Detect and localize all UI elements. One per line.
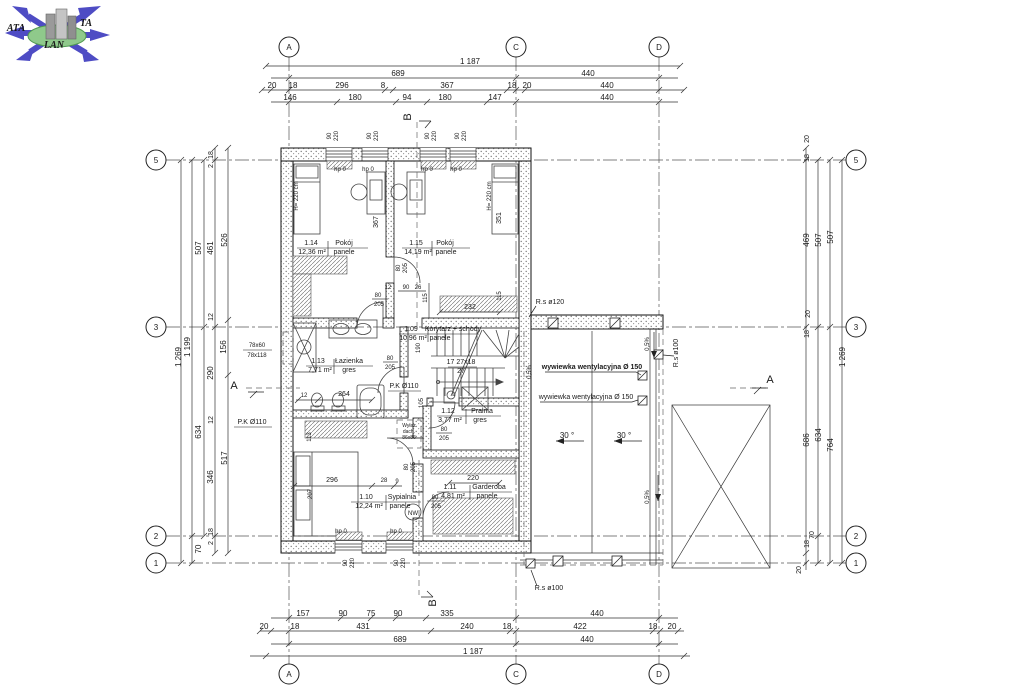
label-dims-bottom-row1-2: 75 xyxy=(367,609,376,618)
label-common-w90: 90 xyxy=(327,132,333,139)
label-dims-bottom-row1-0: 157 xyxy=(296,609,310,618)
label-logo-ata: ATA xyxy=(6,23,26,34)
label-common-hp0: hp 0 xyxy=(450,167,462,173)
label-rooms-6-number: 1.11 xyxy=(443,484,456,491)
label-common-h220: H= 220 cm xyxy=(487,181,493,210)
label-dims-top-row3-2: 296 xyxy=(335,81,349,90)
label-dims-left-col4-8: 2 xyxy=(208,541,215,545)
label-common-deg30: 30 ° xyxy=(617,431,631,440)
label-axis_bubbles-d: D xyxy=(656,670,662,679)
label-dims-right-col2-1: 634 xyxy=(814,428,823,442)
label-dims-right-col1-4: 18 xyxy=(804,330,811,338)
label-dims-top-row2-1: 440 xyxy=(581,69,595,78)
label-axis_bubbles-a: A xyxy=(286,43,292,52)
label-common-wyw: wywiewka wentylacyjna Ø 150 xyxy=(541,364,642,371)
label-axis_bubbles-b: B xyxy=(427,599,439,606)
label-rooms-2-number: 1.13 xyxy=(311,358,325,365)
label-common-rs100: R.s ø100 xyxy=(673,339,680,368)
label-rooms-4-area: 3,77 m² xyxy=(438,417,462,424)
label-dims-left-col4-1: 2 xyxy=(208,164,215,168)
label-dims-right-col2-2: 70 xyxy=(809,531,816,539)
label-common-slope: 0,5% xyxy=(645,490,651,504)
label-dims-left-col5-2: 517 xyxy=(220,451,229,465)
label-dims-left-col4-2: 461 xyxy=(206,241,215,255)
label-axis_bubbles-n3: 3 xyxy=(854,323,859,332)
label-axis_bubbles-n2: 2 xyxy=(854,532,859,541)
label-dims-bottom-row2-5: 422 xyxy=(573,622,587,631)
label-dims-right-col1-7: 20 xyxy=(796,566,803,574)
label-axis_bubbles-a: A xyxy=(766,374,774,386)
label-rooms-4-number: 1.12 xyxy=(441,408,455,415)
label-dims-top-row3-3: 8 xyxy=(381,81,386,90)
label-labels-nw: NW xyxy=(408,511,418,517)
label-labels-d367: 367 xyxy=(373,216,380,228)
label-rooms-5-floor: panele xyxy=(389,503,410,510)
label-common-hp0: hp 0 xyxy=(390,529,402,535)
label-rooms-3-number: 1.09 xyxy=(404,326,418,333)
label-dims-top-total: 1 187 xyxy=(460,57,481,66)
label-rooms-3-floor: panele xyxy=(429,335,450,342)
label-labels-d220: 220 xyxy=(467,475,479,482)
label-common-w220: 220 xyxy=(334,130,340,141)
axis-bubbles xyxy=(146,37,866,684)
label-axis_bubbles-a: A xyxy=(286,670,292,679)
label-dims-left-col5-0: 526 xyxy=(220,233,229,247)
label-dims-bottom-row2-3: 240 xyxy=(460,622,474,631)
label-dims-top-row3-7: 440 xyxy=(600,81,614,90)
label-rooms-3-area: 10,96 m² xyxy=(399,335,427,342)
label-dims-left-col4-3: 12 xyxy=(208,313,215,321)
label-common-w220: 220 xyxy=(350,557,356,568)
label-rooms-5-area: 12,24 m² xyxy=(355,503,383,510)
label-labels-d26: 26 xyxy=(415,285,422,291)
label-dims-top-row3-0: 20 xyxy=(268,81,277,90)
label-labels-d115: 115 xyxy=(423,293,429,303)
label-dims-left-col4-0: 18 xyxy=(208,151,215,159)
label-dims-bottom-total: 1 187 xyxy=(463,647,484,656)
label-rooms-2-area: 7,71 m² xyxy=(308,367,332,374)
label-common-w220: 220 xyxy=(401,557,407,568)
label-labels-roof_win_bottom: 78x118 xyxy=(247,353,267,359)
label-labels-d12: 12 xyxy=(301,393,308,399)
label-dims-top-row4-4: 147 xyxy=(488,93,502,102)
label-rooms-6-floor: panele xyxy=(476,493,497,500)
label-rooms-1-number: 1.15 xyxy=(409,240,423,247)
label-axis_bubbles-d: D xyxy=(656,43,662,52)
label-dims-top-row4-1: 180 xyxy=(348,93,362,102)
floor-plan-canvas: ACDACD53215321AABB1 18768944020182968367… xyxy=(0,0,1024,699)
label-stairs-line2: 27 xyxy=(457,368,465,375)
label-labels-d28: 28 xyxy=(381,478,388,484)
label-axis_bubbles-n1: 1 xyxy=(854,559,859,568)
label-common-hp0: hp 0 xyxy=(334,167,346,173)
label-labels-d105: 105 xyxy=(419,397,425,408)
label-labels-d113: 113 xyxy=(307,432,313,442)
garage-roof-outline xyxy=(672,405,770,568)
label-common-d80: 80 xyxy=(375,293,382,299)
label-dims-top-row4-5: 440 xyxy=(600,93,614,102)
annotation-leaders xyxy=(529,306,674,586)
label-dims-top-row3-6: 20 xyxy=(523,81,532,90)
label-rooms-0-number: 1.14 xyxy=(304,240,318,247)
label-labels-d115: 115 xyxy=(497,291,503,301)
label-dims-top-row3-1: 18 xyxy=(289,81,298,90)
label-rooms-0-area: 12,36 m² xyxy=(298,249,326,256)
label-dims-top-row4-2: 94 xyxy=(403,93,412,102)
label-dims-bottom-row2-1: 18 xyxy=(291,622,300,631)
label-common-d205: 205 xyxy=(431,504,442,510)
roof-slope-arrows xyxy=(556,332,661,501)
label-rooms-4-name: Pralnia xyxy=(471,408,493,415)
label-dims-top-row3-4: 367 xyxy=(440,81,454,90)
label-dims-bottom-row2-4: 18 xyxy=(503,622,512,631)
label-dims-right-total: 1 269 xyxy=(838,346,847,367)
label-common-wyw: wywiewka wentylacyjna Ø 150 xyxy=(538,394,634,401)
label-common-w220: 220 xyxy=(374,130,380,141)
label-dims-right-col1-3: 20 xyxy=(805,310,812,318)
label-dims-left-col4-4: 290 xyxy=(206,366,215,380)
label-common-deg30: 30 ° xyxy=(560,431,574,440)
label-labels-d351: 351 xyxy=(496,212,503,224)
label-common-slope: 0,5% xyxy=(527,365,533,379)
label-common-hp0: hp 0 xyxy=(335,529,347,535)
label-axis_bubbles-n3: 3 xyxy=(154,323,159,332)
label-dims-right-col1-0: 20 xyxy=(804,135,811,143)
label-common-w220: 220 xyxy=(462,130,468,141)
label-common-h220: H= 220 cm xyxy=(294,181,300,210)
label-labels-d207: 207 xyxy=(308,488,314,499)
label-dims-left-col3-0: 507 xyxy=(194,241,203,255)
label-dims-bottom-row3-1: 440 xyxy=(580,635,594,644)
label-dims-right-col1-5: 686 xyxy=(802,433,811,447)
label-dims-top-row3-5: 18 xyxy=(508,81,517,90)
label-logo-lan: LAN xyxy=(43,40,65,51)
label-axis_bubbles-c: C xyxy=(513,43,519,52)
label-common-w90: 90 xyxy=(455,132,461,139)
label-common-d80: 80 xyxy=(387,356,394,362)
label-dims-right-col1-6: 18 xyxy=(804,540,811,548)
label-common-d205: 205 xyxy=(411,461,417,472)
label-dims-right-col3-0: 507 xyxy=(826,230,835,244)
company-logo xyxy=(5,6,110,62)
label-dims-top-row4-0: 146 xyxy=(283,93,297,102)
label-dims-left-col5-1: 156 xyxy=(219,340,228,354)
label-dims-left-col4-5: 12 xyxy=(208,416,215,424)
label-rooms-5-number: 1.10 xyxy=(359,494,373,501)
label-dims-bottom-row2-2: 431 xyxy=(356,622,370,631)
label-rooms-5-name: Sypialnia xyxy=(388,494,417,501)
label-dims-left-col4-6: 346 xyxy=(206,470,215,484)
label-dims-right-col3-1: 764 xyxy=(826,438,835,452)
label-dims-bottom-row2-7: 20 xyxy=(668,622,677,631)
label-axis_bubbles-n1: 1 xyxy=(154,559,159,568)
label-common-d80: 80 xyxy=(432,495,439,501)
label-common-w90: 90 xyxy=(403,285,410,291)
label-rooms-3-name: Korytarz + schody xyxy=(425,326,482,333)
label-common-hp0: hp 0 xyxy=(421,167,433,173)
label-dims-top-row2-0: 689 xyxy=(391,69,405,78)
label-dims-bottom-row1-4: 335 xyxy=(440,609,454,618)
label-common-d80: 80 xyxy=(441,427,448,433)
label-labels-roof_win_top: 78x60 xyxy=(249,343,266,349)
label-common-w90: 90 xyxy=(394,559,400,566)
label-dims-bottom-row1-3: 90 xyxy=(394,609,403,618)
label-common-rs100: R.s ø100 xyxy=(535,585,564,592)
label-dims-bottom-row2-6: 18 xyxy=(649,622,658,631)
label-dims-bottom-row1-5: 440 xyxy=(590,609,604,618)
label-rooms-2-floor: gres xyxy=(342,367,356,374)
label-dims-top-row4-3: 180 xyxy=(438,93,452,102)
label-dims-bottom-row2-0: 20 xyxy=(260,622,269,631)
label-rooms-6-area: 4,81 m² xyxy=(441,493,465,500)
label-labels-d296: 296 xyxy=(326,477,338,484)
label-common-hp0: hp 0 xyxy=(362,167,374,173)
logo-buildings xyxy=(46,9,76,39)
label-axis_bubbles-n5: 5 xyxy=(154,156,159,165)
label-common-pk110: P.K Ø110 xyxy=(238,419,267,426)
label-rooms-4-floor: gres xyxy=(473,417,487,424)
label-common-d205: 205 xyxy=(439,436,450,442)
label-common-d80: 80 xyxy=(404,463,410,470)
label-labels-d190: 190 xyxy=(416,342,422,353)
label-dims-left-total: 1 269 xyxy=(174,346,183,367)
wall-vent-symbols xyxy=(526,318,663,568)
label-rooms-1-area: 14,19 m² xyxy=(404,249,432,256)
label-rooms-1-name: Pokój xyxy=(436,240,454,247)
label-common-w90: 90 xyxy=(343,559,349,566)
label-common-slope: 0,5% xyxy=(645,337,651,351)
label-dims-bottom-row3-0: 689 xyxy=(393,635,407,644)
text-labels: ACDACD53215321AABB1 18768944020182968367… xyxy=(6,18,859,679)
label-common-d80: 80 xyxy=(396,264,402,271)
label-rooms-0-name: Pokój xyxy=(335,240,353,247)
label-labels-wylaz3: 86x86 xyxy=(402,435,416,441)
label-dims-bottom-row1-1: 90 xyxy=(339,609,348,618)
label-dims-left-col2-1: 70 xyxy=(194,544,203,553)
label-labels-d264: 264 xyxy=(338,391,350,398)
label-common-w90: 90 xyxy=(425,132,431,139)
label-labels-d9: 9 xyxy=(395,479,399,485)
label-rooms-0-floor: panele xyxy=(333,249,354,256)
label-axis_bubbles-n2: 2 xyxy=(154,532,159,541)
label-common-w220: 220 xyxy=(432,130,438,141)
label-logo-ta: TA xyxy=(80,18,93,29)
label-axis_bubbles-c: C xyxy=(513,670,519,679)
label-dims-right-col2-0: 507 xyxy=(814,233,823,247)
label-common-d205: 205 xyxy=(403,262,409,273)
label-labels-d12: 12 xyxy=(385,285,392,291)
label-dims-left-col3-1: 634 xyxy=(194,425,203,439)
label-common-d205: 205 xyxy=(374,302,385,308)
label-common-pk110: P.K Ø110 xyxy=(390,383,419,390)
label-axis_bubbles-a: A xyxy=(230,380,238,392)
label-rooms-1-floor: panele xyxy=(435,249,456,256)
label-stairs-line1: 17 27x18 xyxy=(447,359,476,366)
label-common-w90: 90 xyxy=(367,132,373,139)
label-rooms-2-name: Łazienka xyxy=(335,358,363,365)
label-common-d205: 205 xyxy=(385,365,396,371)
label-dims-left-col4-7: 18 xyxy=(208,528,215,536)
label-labels-rs120: R.s ø120 xyxy=(536,299,565,306)
label-axis_bubbles-b: B xyxy=(402,113,414,120)
label-dims-right-col1-1: 18 xyxy=(804,154,811,162)
label-dims-right-col1-2: 469 xyxy=(802,233,811,247)
label-rooms-6-name: Garderoba xyxy=(472,484,506,491)
label-labels-d232: 232 xyxy=(464,304,476,311)
label-axis_bubbles-n5: 5 xyxy=(854,156,859,165)
label-dims-left-col2-0: 1 199 xyxy=(183,336,192,357)
